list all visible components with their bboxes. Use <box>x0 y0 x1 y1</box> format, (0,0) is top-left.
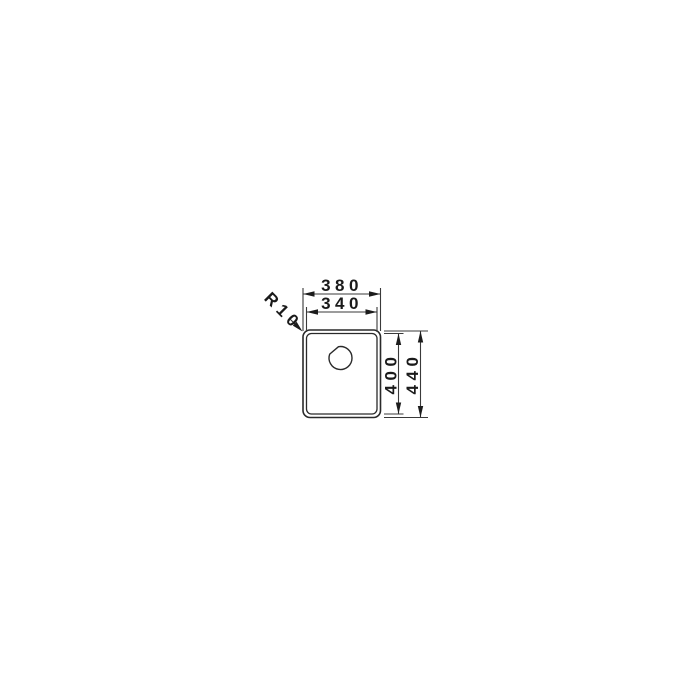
outer-depth-arrow-top <box>418 331 423 343</box>
inner-depth-arrow-top <box>396 334 401 346</box>
dim-inner-width: 340 <box>307 294 378 315</box>
outer-width-label: 380 <box>321 276 363 295</box>
outer-depth-arrow-bottom <box>418 406 423 418</box>
drain-hole <box>329 347 352 370</box>
inner-depth-label: 400 <box>382 353 401 395</box>
dim-inner-depth: 400 <box>382 334 402 415</box>
outer-depth-label: 440 <box>403 353 422 395</box>
inner-width-label: 340 <box>321 294 363 313</box>
sink-outer-outline <box>303 330 381 418</box>
outer-width-arrow-left <box>303 291 315 296</box>
inner-depth-arrow-bottom <box>396 403 401 415</box>
sink-plan-view <box>303 330 381 418</box>
drawing-canvas: 380 340 400 440 <box>0 0 700 700</box>
dim-corner-radius: R10 <box>260 288 305 333</box>
dim-outer-depth: 440 <box>403 331 423 418</box>
corner-radius-label: R10 <box>260 288 305 333</box>
outer-width-arrow-right <box>369 291 381 296</box>
sink-dimension-diagram: 380 340 400 440 <box>0 0 700 700</box>
inner-width-arrow-right <box>366 309 378 314</box>
sink-bowl-inner-outline <box>307 334 378 415</box>
inner-width-arrow-left <box>307 309 319 314</box>
